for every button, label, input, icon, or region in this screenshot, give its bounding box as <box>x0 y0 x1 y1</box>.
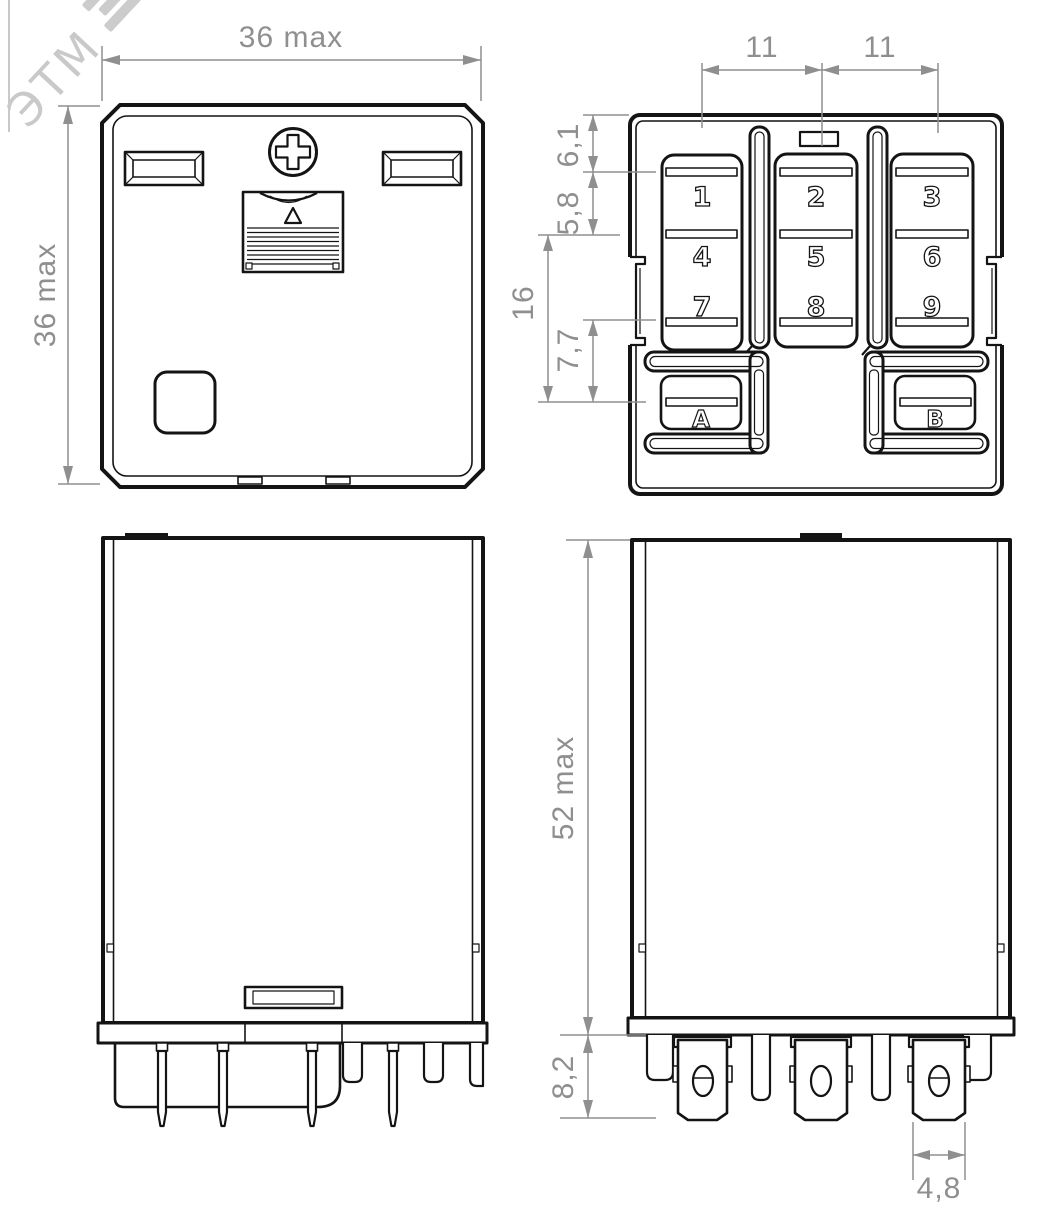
socket-stub <box>424 1043 443 1082</box>
side-notch-right <box>987 257 1006 345</box>
side-flange <box>98 1023 487 1043</box>
dim-5-8-label: 5,8 <box>552 191 585 236</box>
top-slot-left <box>125 152 203 185</box>
watermark-text: ЭТМ <box>0 19 112 138</box>
pin-label-8: 8 <box>807 292 826 323</box>
top-view <box>102 105 483 487</box>
blade-terminal <box>673 1037 732 1120</box>
side-notch-left <box>626 257 645 345</box>
dim-width-label: 36 max <box>239 21 343 54</box>
bottom-edge-notch <box>326 477 350 484</box>
socket-stub <box>470 1043 483 1086</box>
narrow-pin <box>752 1035 770 1100</box>
side-view <box>98 533 487 1126</box>
pin-label-1: 1 <box>693 182 712 213</box>
dim-52max-label: 52 max <box>547 736 580 840</box>
needle-pin <box>157 1043 168 1126</box>
pin-label-7: 7 <box>693 292 712 323</box>
pin-label-6: 6 <box>923 242 942 273</box>
pin-column-1: 1 4 7 <box>662 155 742 350</box>
screw-icon <box>270 129 317 176</box>
dim-4-8-label: 4,8 <box>917 1172 962 1205</box>
needle-pin <box>388 1043 399 1126</box>
marking-window <box>155 372 215 433</box>
pin-column-3: 3 6 9 <box>891 154 973 347</box>
needle-pin <box>307 1043 318 1126</box>
wall-step <box>473 944 480 952</box>
front-flange <box>628 1018 1014 1035</box>
coil-terminal-a: A <box>645 352 768 453</box>
top-slot-right <box>383 152 461 185</box>
wall-step <box>998 944 1005 952</box>
pin-column-2: 2 5 8 <box>775 154 857 347</box>
needle-pin <box>218 1043 229 1126</box>
pin-label-2: 2 <box>807 182 826 213</box>
bottom-pin-view: 1 4 7 2 5 8 3 6 9 <box>626 115 1006 494</box>
coil-terminal-b: B <box>865 352 988 453</box>
dim-pitch-right-label: 11 <box>863 31 896 64</box>
rear-block <box>647 1035 673 1080</box>
dim-8-2-label: 8,2 <box>547 1055 580 1100</box>
dim-16-label: 16 <box>507 285 540 320</box>
pin-label-4: 4 <box>693 242 712 273</box>
side-view-body <box>103 538 483 1023</box>
terminal-label-a: A <box>692 407 710 433</box>
wall-step <box>639 944 646 952</box>
pin-label-3: 3 <box>923 182 942 213</box>
pin-label-5: 5 <box>807 242 826 273</box>
dim-height-label: 36 max <box>29 243 62 347</box>
relay-dimension-drawing: ЭТМ <box>0 0 1048 1215</box>
side-label-window <box>245 987 342 1008</box>
dim-pitch-left-label: 11 <box>745 31 778 64</box>
front-view <box>628 533 1014 1120</box>
dim-6-1-label: 6,1 <box>552 123 585 168</box>
dim-7-7-label: 7,7 <box>552 328 585 373</box>
narrow-pin <box>872 1035 890 1100</box>
socket-stub <box>343 1043 362 1082</box>
bottom-edge-notch <box>238 477 262 484</box>
pin-label-9: 9 <box>923 292 942 323</box>
front-view-body <box>632 540 1010 1018</box>
wall-step <box>107 944 114 952</box>
blade-terminal <box>790 1037 852 1120</box>
terminal-label-b: B <box>926 407 944 433</box>
label-latch-area <box>243 192 343 272</box>
index-notch <box>800 132 838 146</box>
blade-terminal <box>908 1037 970 1120</box>
